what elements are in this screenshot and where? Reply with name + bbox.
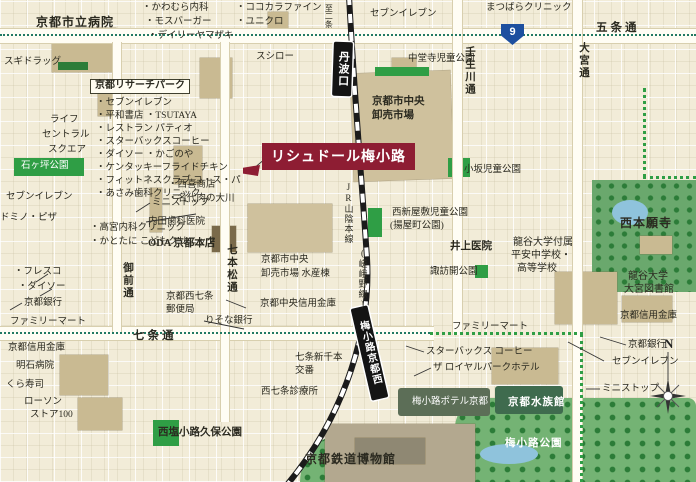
- map-label: 京都銀行: [24, 299, 62, 309]
- map-label: JR山陰本線: [343, 182, 352, 244]
- map-label: 京都中央信用金庫: [260, 300, 336, 310]
- map-label: ドミノ・ピザ: [0, 214, 57, 224]
- map-label: セントラル: [42, 131, 90, 141]
- ishigatsubo-park: [14, 158, 84, 176]
- nishi-shiokoji-kubo-park: [153, 420, 179, 446]
- temple-pond: [612, 200, 648, 225]
- property-title: リシュドール梅小路: [262, 143, 415, 170]
- map-label: ・レストラン パティオ: [96, 125, 193, 135]
- green-dotted-path-h: [430, 332, 583, 335]
- map-label: ライフ: [50, 116, 79, 126]
- map-label: 西七条診療所: [261, 388, 318, 398]
- map-label: ・かわむら内科: [142, 4, 209, 14]
- shichihonmatsu-dori-road: [220, 42, 230, 422]
- map-label: 中堂寺児童公園: [408, 55, 475, 65]
- map-label: ・ダイソー: [18, 283, 66, 293]
- gojo-center-dots: [0, 34, 696, 36]
- nishi-shinyashiki-childrens-park: [368, 208, 382, 237]
- map-label: ・フレスコ: [14, 268, 62, 278]
- map-label: 壬生川通: [464, 46, 475, 96]
- compass-north-label: N: [664, 336, 674, 351]
- map-label: まつばらクリニック: [486, 4, 572, 14]
- map-label: ・モスバーガー: [145, 18, 212, 28]
- property-flag-marker: [243, 165, 260, 176]
- map-label: 七条新千本: [295, 354, 343, 364]
- map-canvas: 丹波口 梅小路京都西 京都市立病院・かわむら内科・モスバーガー・デイリーヤマザキ…: [0, 0, 696, 482]
- map-label: ・かとたに こどもクリニック: [90, 238, 216, 248]
- map-label: ストア100: [30, 411, 73, 421]
- research-park-building-3: [174, 146, 202, 184]
- map-label: 交番: [295, 367, 314, 377]
- library-building: [622, 296, 672, 322]
- map-label: 郵便局: [166, 306, 195, 316]
- map-label: 御前通: [122, 262, 133, 300]
- map-label: セブンイレブン: [370, 10, 437, 20]
- railway-museum-roof: [355, 438, 425, 464]
- temple-building: [640, 236, 672, 254]
- tambaguchi-station: 丹波口: [332, 42, 353, 97]
- onmae-dori-road: [112, 42, 122, 332]
- map-label: 卸売市場 水産棟: [261, 270, 330, 280]
- map-label: 明石病院: [16, 362, 54, 372]
- map-label: 高等学校: [517, 264, 557, 275]
- map-label: 龍谷大学付属: [513, 238, 573, 249]
- hospital-green: [58, 62, 88, 70]
- umekoji-kyotonishi-station: 梅小路京都西: [351, 305, 389, 400]
- heian-school-building: [555, 272, 617, 324]
- map-label: 京都信用金庫: [8, 344, 65, 354]
- map-label: 小坂児童公園: [464, 166, 521, 176]
- map-label: くら寿司: [6, 381, 44, 391]
- map-label: 京都市立病院: [36, 16, 114, 29]
- map-label: (嵯峨野線): [357, 248, 366, 310]
- building-bottom-left: [78, 398, 122, 430]
- map-label: 京都西七条: [166, 293, 214, 303]
- suwabiraki-park: [475, 265, 488, 278]
- map-label: スシロー: [256, 53, 294, 63]
- green-dotted-path-v: [580, 334, 583, 482]
- map-label: セブンイレブン: [6, 193, 73, 203]
- map-label: ・高宮内科クリニック: [90, 224, 185, 234]
- green-dotted-path-temple-v: [643, 88, 646, 178]
- mibugawa-dori-road: [452, 0, 463, 335]
- compass-rose: N: [644, 334, 692, 426]
- umekoji-potel-building: [398, 388, 490, 416]
- map-label: 平安中学校・: [511, 251, 571, 262]
- royal-park-hotel-building: [492, 348, 558, 384]
- map-label: ODA 京都本店: [148, 238, 215, 249]
- research-park-building-4: [150, 188, 162, 232]
- map-label: 至二条: [324, 4, 332, 28]
- akashi-hospital-building: [60, 355, 108, 395]
- chudoji-childrens-park: [375, 67, 429, 76]
- green-dotted-path-temple-h: [643, 176, 696, 179]
- map-label: 京都市中央: [261, 256, 309, 266]
- kyoto-aquarium-building: [495, 386, 563, 414]
- map-label: (揚屋町公園): [390, 222, 444, 232]
- map-label: ローソン: [24, 398, 62, 408]
- market-fisheries-building: [248, 204, 332, 252]
- map-label: スクエア: [48, 146, 86, 156]
- park-pond: [480, 444, 538, 464]
